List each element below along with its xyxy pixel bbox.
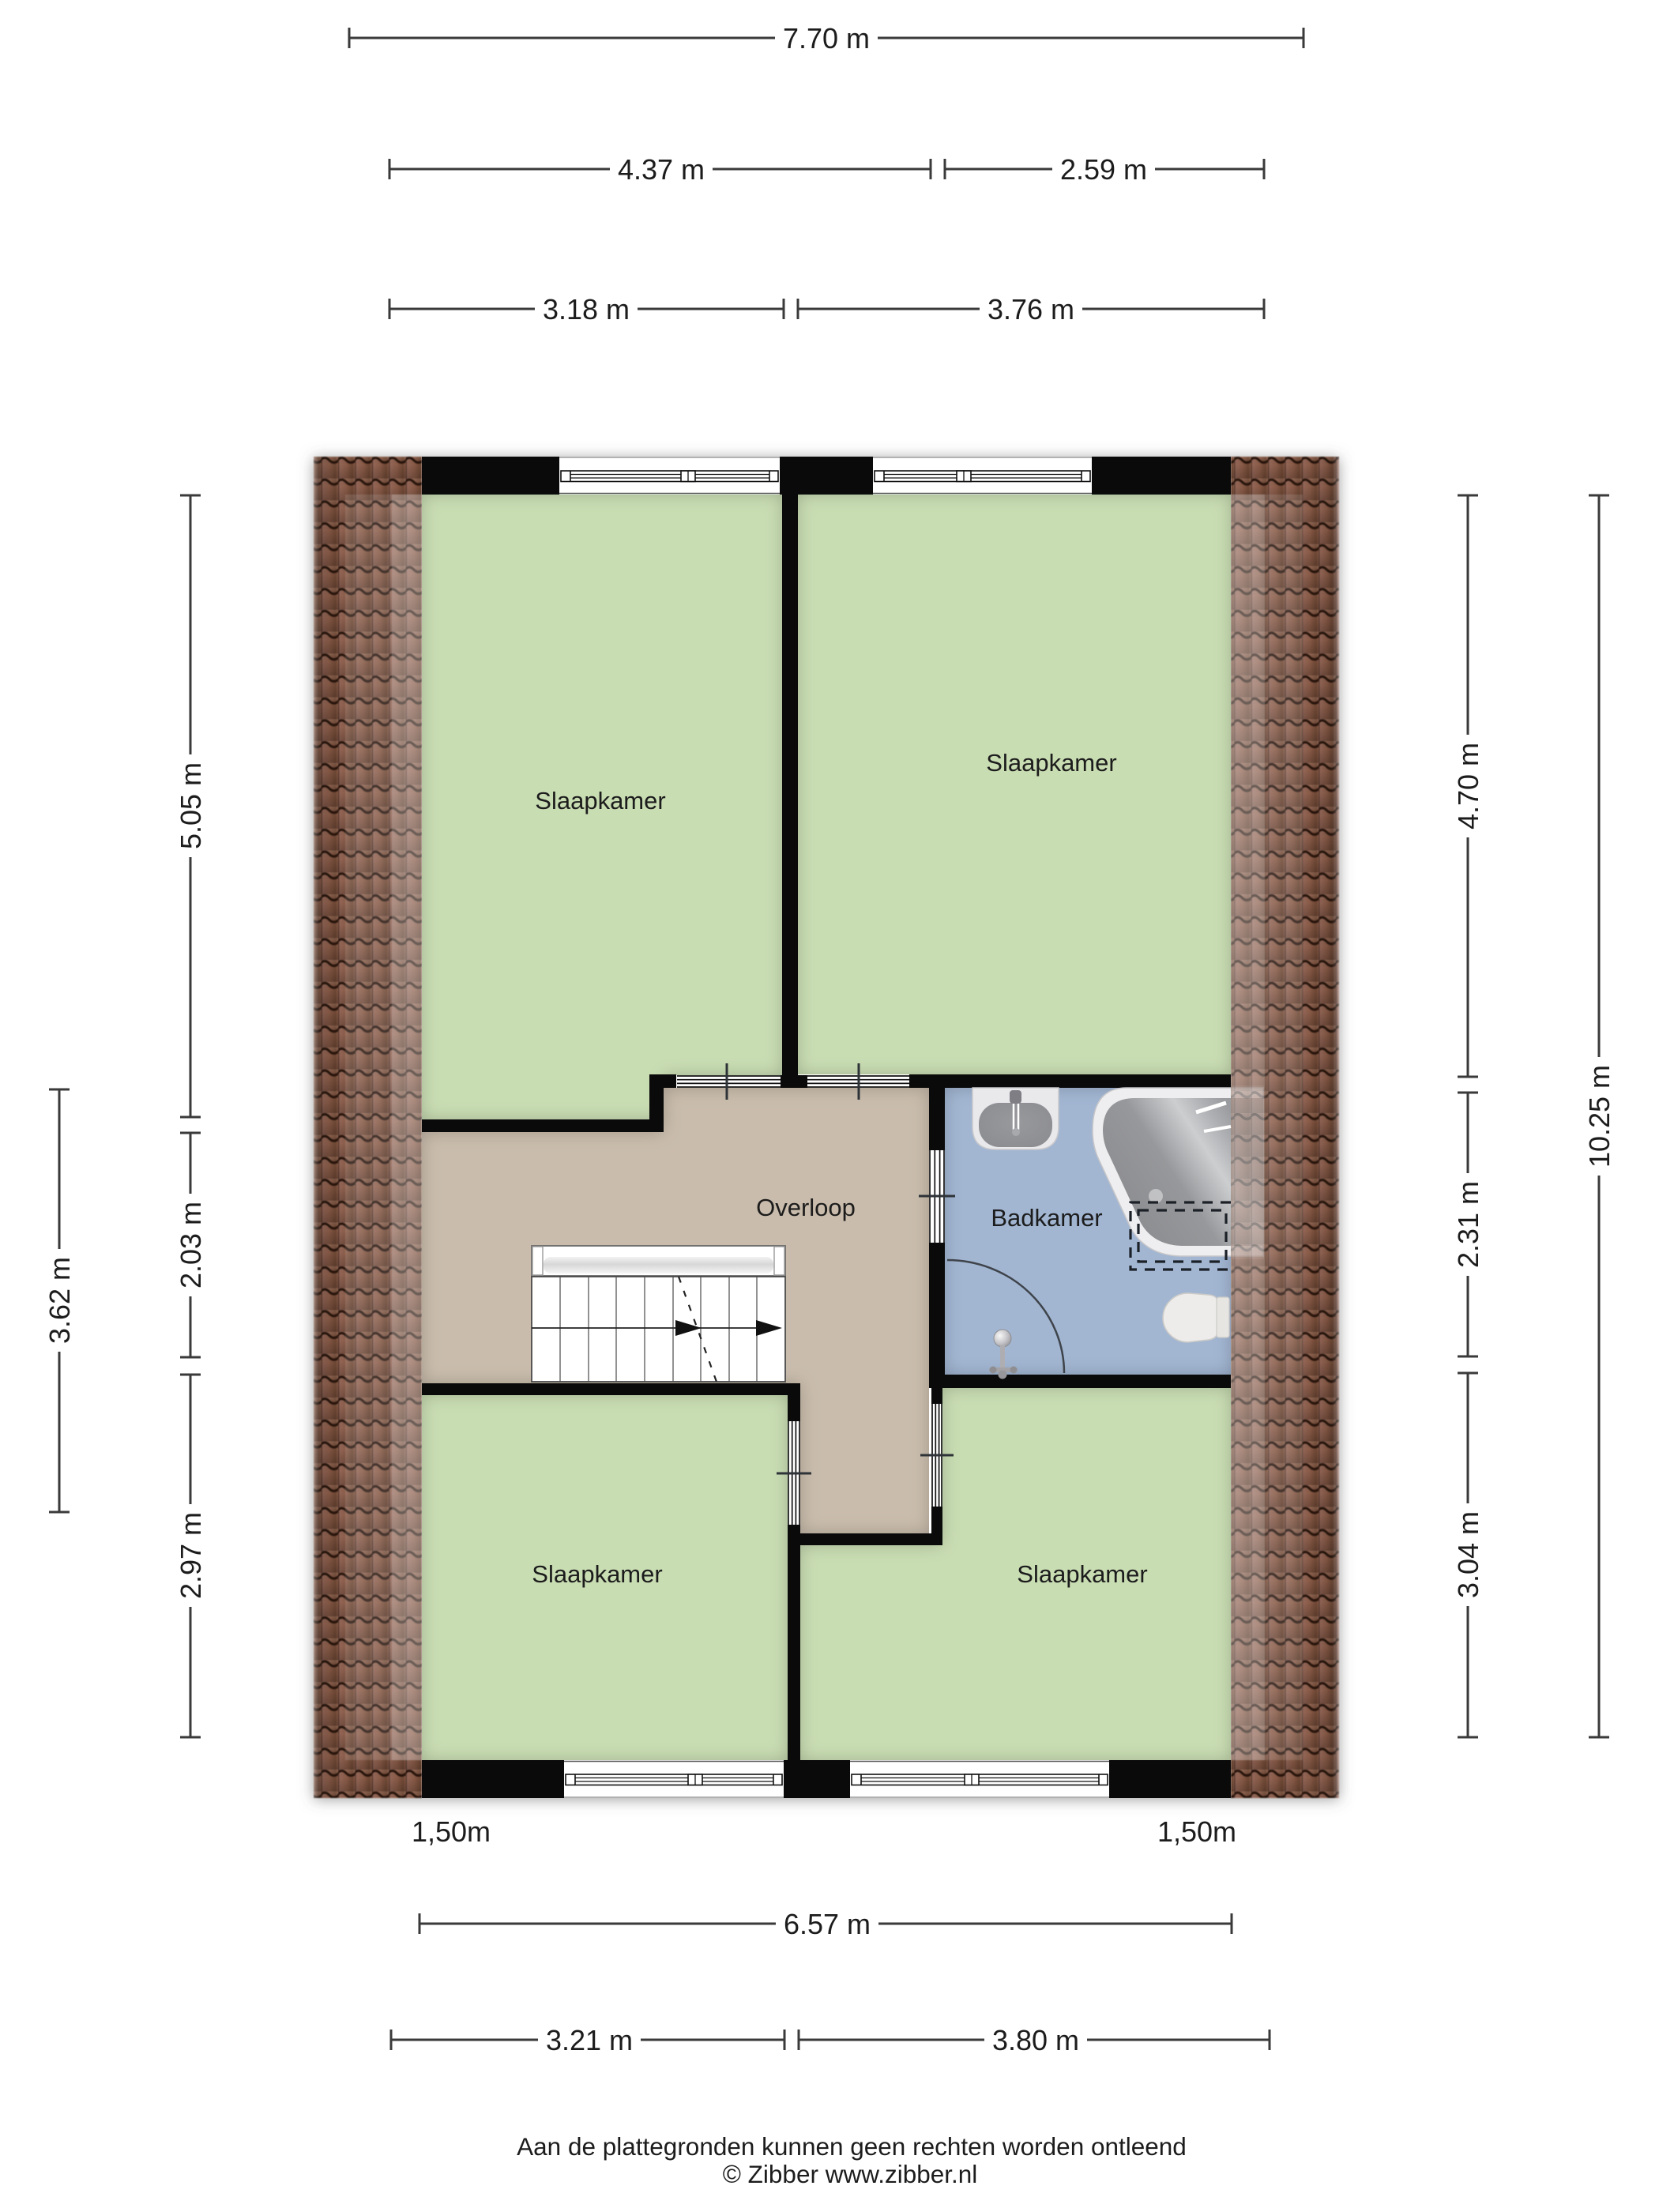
svg-text:Slaapkamer: Slaapkamer (1017, 1560, 1147, 1588)
svg-text:5.05 m: 5.05 m (175, 762, 207, 849)
svg-text:3.18 m: 3.18 m (543, 293, 630, 325)
svg-text:2.03 m: 2.03 m (175, 1202, 207, 1288)
svg-text:Slaapkamer: Slaapkamer (986, 749, 1116, 777)
svg-text:2.97 m: 2.97 m (175, 1512, 207, 1599)
svg-text:1,50m: 1,50m (412, 1815, 491, 1848)
svg-text:3.62 m: 3.62 m (43, 1257, 76, 1344)
svg-text:3.80 m: 3.80 m (992, 2024, 1079, 2056)
svg-text:4.37 m: 4.37 m (618, 153, 705, 186)
svg-text:Badkamer: Badkamer (991, 1204, 1102, 1232)
svg-text:4.70 m: 4.70 m (1452, 743, 1484, 829)
svg-text:3.76 m: 3.76 m (987, 293, 1074, 325)
svg-text:Slaapkamer: Slaapkamer (535, 787, 665, 814)
svg-text:2.59 m: 2.59 m (1060, 153, 1147, 186)
svg-text:10.25 m: 10.25 m (1583, 1065, 1616, 1168)
svg-text:Slaapkamer: Slaapkamer (532, 1560, 662, 1588)
svg-text:3.21 m: 3.21 m (546, 2024, 633, 2056)
svg-text:7.70 m: 7.70 m (783, 22, 870, 55)
svg-text:© Zibber www.zibber.nl: © Zibber www.zibber.nl (723, 2160, 978, 2188)
svg-text:3.04 m: 3.04 m (1452, 1511, 1484, 1598)
svg-text:Overloop: Overloop (756, 1194, 856, 1221)
svg-text:1,50m: 1,50m (1157, 1815, 1236, 1848)
svg-text:6.57 m: 6.57 m (784, 1908, 871, 1940)
svg-text:2.31 m: 2.31 m (1452, 1181, 1484, 1268)
svg-text:Aan de plattegronden kunnen ge: Aan de plattegronden kunnen geen rechten… (517, 2132, 1187, 2161)
